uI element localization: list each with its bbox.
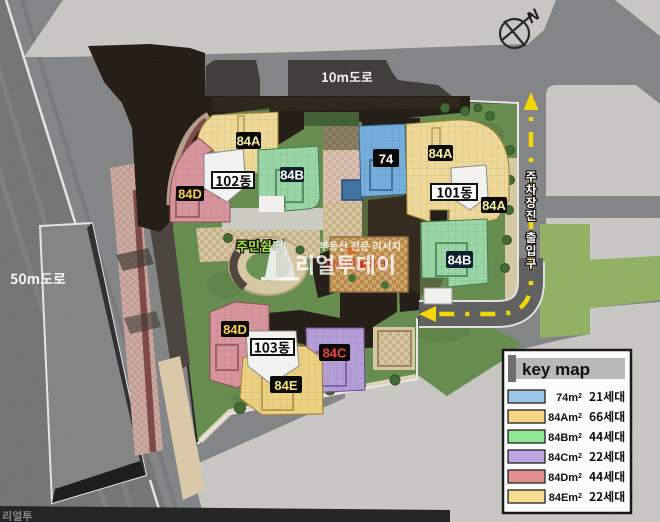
svg-text:84Bm2: 84Bm2 xyxy=(548,432,582,444)
svg-text:84A: 84A xyxy=(237,134,261,149)
svg-text:84Dm2: 84Dm2 xyxy=(548,472,582,484)
svg-text:84A: 84A xyxy=(429,146,453,161)
svg-text:74: 74 xyxy=(379,152,394,167)
svg-text:84B: 84B xyxy=(448,253,472,268)
svg-text:84D: 84D xyxy=(223,322,247,337)
svg-text:84E: 84E xyxy=(274,378,297,393)
svg-text:84Em2: 84Em2 xyxy=(549,492,582,504)
svg-text:84B: 84B xyxy=(280,168,304,183)
svg-text:84D: 84D xyxy=(178,187,202,202)
svg-text:84A: 84A xyxy=(482,198,506,213)
svg-text:key map: key map xyxy=(522,360,590,379)
svg-text:84Cm2: 84Cm2 xyxy=(548,452,582,464)
svg-text:84C: 84C xyxy=(323,346,347,361)
svg-text:84Am2: 84Am2 xyxy=(548,412,582,424)
